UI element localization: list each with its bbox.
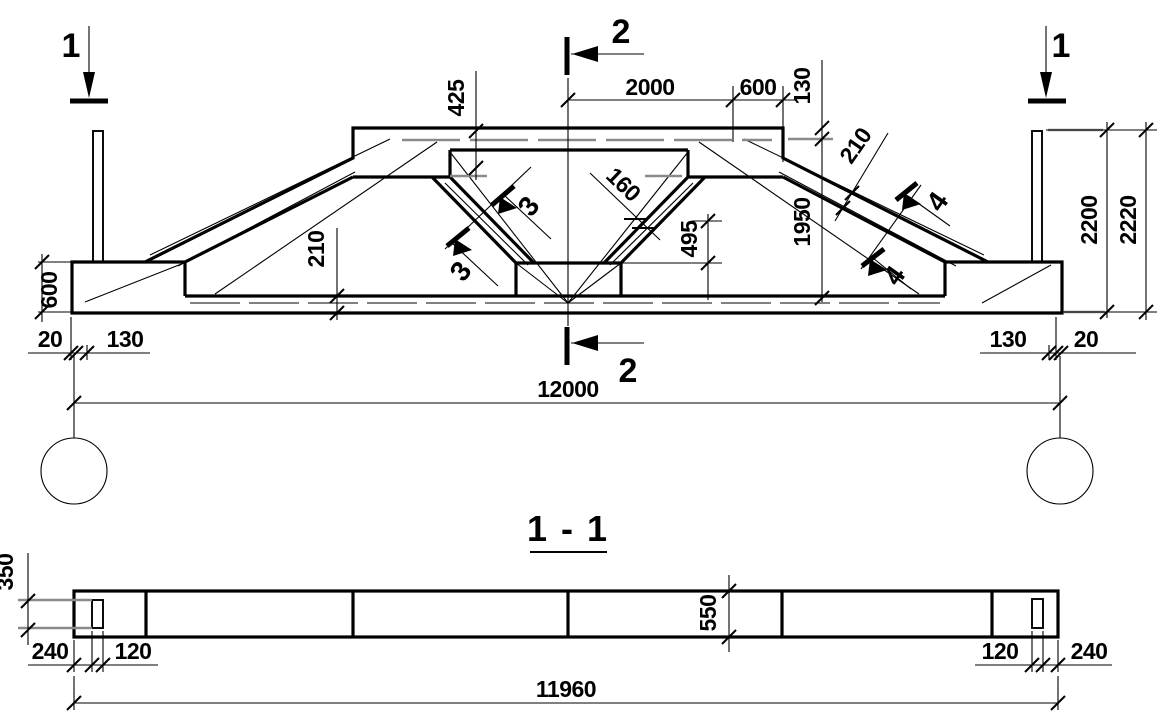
elevation-dimensions: 2000 600 425 130 1950 2200 2220 210 160 … [28,60,1157,360]
dim-210-chord: 210 [303,231,329,268]
section-view-1-1: 1 - 1 350 550 240 120 120 240 11960 [0,508,1112,710]
arrow-left-icon [572,46,598,62]
elevation-view [72,128,1105,313]
section-title: 1 - 1 [527,508,609,549]
beam-joints [146,591,992,637]
dim-2000: 2000 [625,74,674,100]
dim-2200: 2200 [1076,195,1102,244]
drawing-canvas: 2000 600 425 130 1950 2200 2220 210 160 … [0,0,1161,718]
dim-20-right: 20 [1074,326,1099,352]
cut-label-4: 4 [877,260,912,291]
cut-label-1: 1 [1052,27,1071,65]
dim-210-haunch: 210 [834,123,876,168]
dim-2220: 2220 [1115,195,1141,244]
dim-130-right: 130 [990,326,1027,352]
dim-350: 350 [0,554,18,591]
cut-label-1: 1 [62,27,81,65]
grid-bubble-left [41,438,107,504]
dim-495: 495 [676,220,702,258]
dim-11960: 11960 [536,676,596,702]
cut-label-2: 2 [619,352,638,390]
girder-inner-edges [145,150,988,296]
dim-120-right: 120 [982,638,1019,664]
dim-lines-top [28,60,1157,360]
dim-600-top: 600 [740,74,777,100]
section-marker-1-left: 1 [62,26,108,101]
beam-outline [74,591,1058,637]
cut-label-4: 4 [920,186,955,217]
dim-160: 160 [601,162,646,206]
arrow-down-icon [83,72,95,98]
dim-600-support: 600 [36,272,62,309]
arrow-down-icon [1040,72,1052,98]
section-marker-1-right: 1 [1028,26,1070,101]
anchor-hole-right [1032,599,1043,628]
anchor-hole-left [92,600,103,628]
truss-girder-drawing: 2000 600 425 130 1950 2200 2220 210 160 … [0,0,1161,718]
half-arrow-icon [902,193,921,210]
dim-130-left: 130 [107,326,144,352]
dim-240-right: 240 [1071,638,1108,664]
cut-label-2: 2 [612,13,631,51]
dim-12000: 12000 [537,376,598,402]
dim-130-cover: 130 [789,68,815,105]
dim-240-left: 240 [32,638,69,664]
dim-120-left: 120 [115,638,152,664]
cut-label-3: 3 [512,190,546,221]
rebar-gray-segments [450,130,1105,312]
grid-axes: 12000 [41,356,1093,504]
section-marker-2-top: 2 [567,13,644,75]
arrow-left-icon [572,335,598,351]
hole-extension-gray [18,600,92,628]
grid-bubble-right [1027,438,1093,504]
lifting-anchor-right [1032,131,1042,262]
dim-550: 550 [695,595,721,632]
section-markers: 1 1 2 2 3 3 [62,13,1071,390]
dim-1950: 1950 [789,197,815,246]
dim-20-left: 20 [38,326,63,352]
dim-ticks [35,93,1153,360]
lifting-anchor-left [93,131,103,262]
dim-425: 425 [443,79,469,117]
cut-label-3: 3 [444,255,478,286]
